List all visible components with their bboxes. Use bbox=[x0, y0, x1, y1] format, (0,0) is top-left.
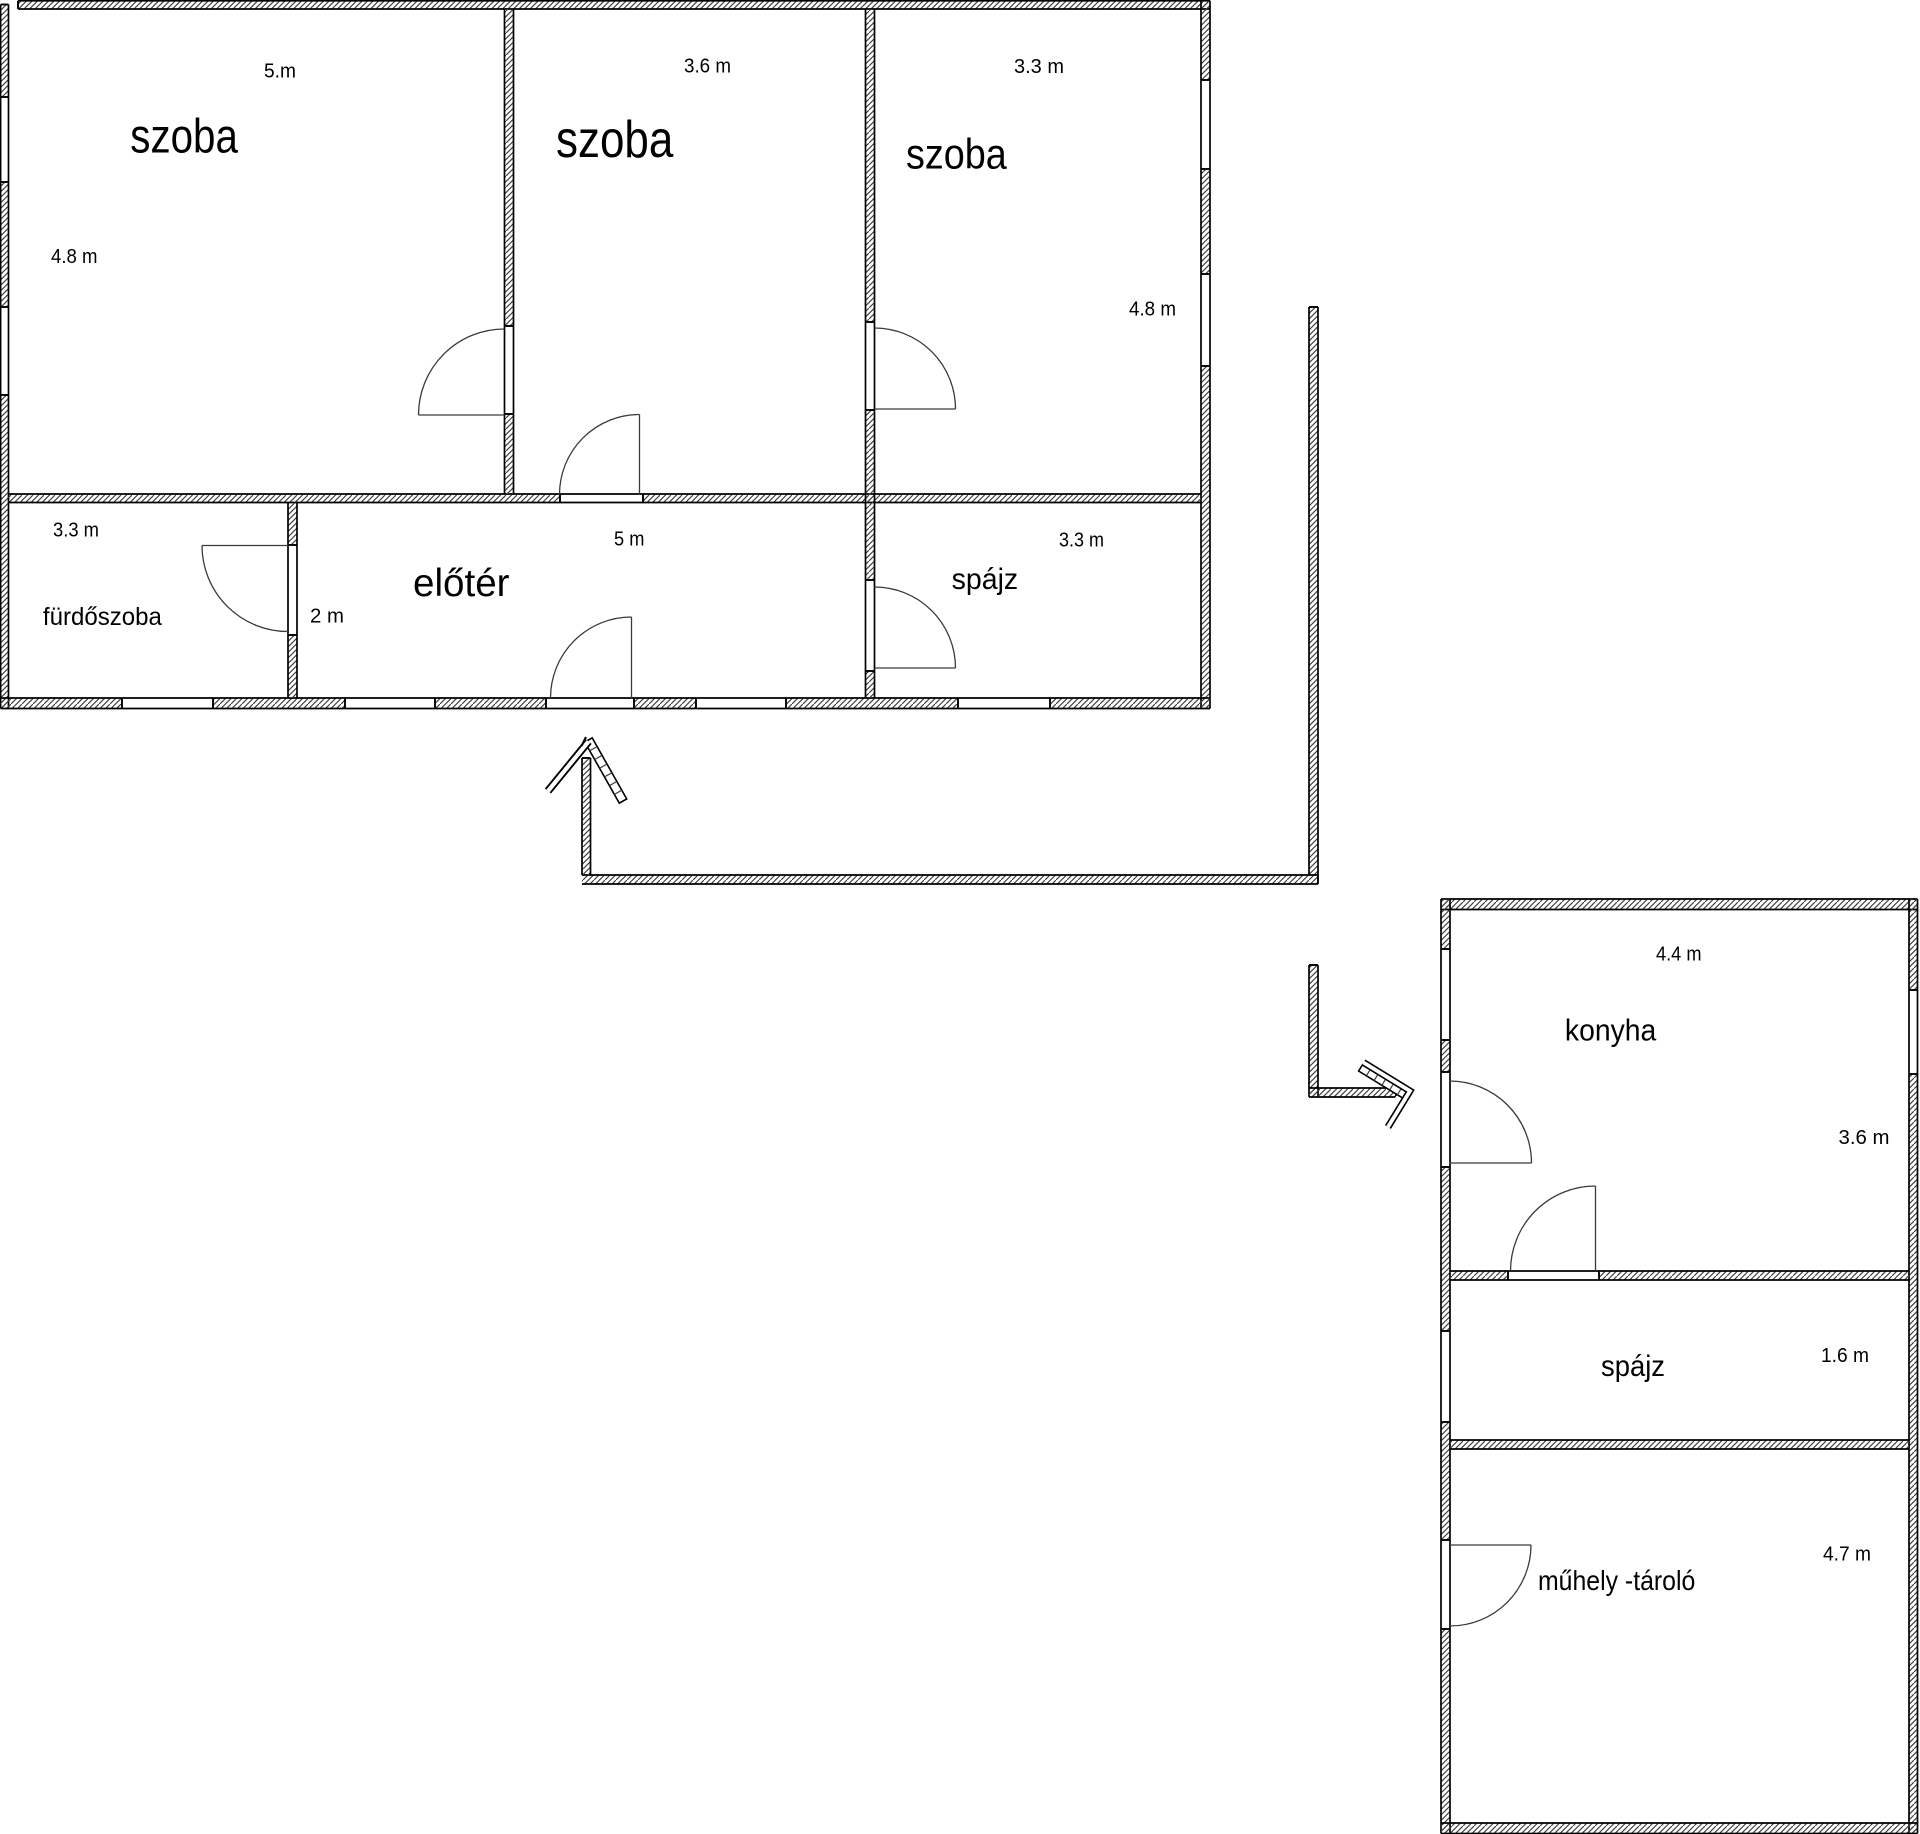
svg-text:2 m: 2 m bbox=[310, 606, 344, 628]
svg-text:szoba: szoba bbox=[556, 110, 674, 168]
svg-text:spájz: spájz bbox=[952, 563, 1019, 596]
svg-text:spájz: spájz bbox=[1601, 1350, 1665, 1383]
svg-text:szoba: szoba bbox=[130, 110, 238, 163]
svg-text:4.4 m: 4.4 m bbox=[1656, 944, 1702, 966]
svg-text:3.6 m: 3.6 m bbox=[1839, 1127, 1890, 1149]
svg-text:3.3 m: 3.3 m bbox=[1014, 56, 1064, 78]
svg-text:3.6 m: 3.6 m bbox=[684, 56, 731, 78]
svg-text:3.3 m: 3.3 m bbox=[53, 520, 99, 542]
svg-text:fürdőszoba: fürdőszoba bbox=[43, 603, 162, 631]
svg-text:1.6 m: 1.6 m bbox=[1821, 1345, 1869, 1367]
svg-text:4.8 m: 4.8 m bbox=[51, 246, 98, 268]
svg-text:5 m: 5 m bbox=[614, 529, 644, 551]
svg-text:4.8 m: 4.8 m bbox=[1129, 299, 1176, 321]
svg-text:szoba: szoba bbox=[906, 131, 1007, 179]
svg-text:5.m: 5.m bbox=[264, 61, 296, 83]
svg-text:konyha: konyha bbox=[1565, 1013, 1657, 1048]
svg-text:4.7 m: 4.7 m bbox=[1823, 1544, 1871, 1566]
svg-text:előtér: előtér bbox=[413, 562, 510, 605]
svg-text:3.3 m: 3.3 m bbox=[1059, 530, 1104, 552]
svg-text:műhely -tároló: műhely -tároló bbox=[1538, 1565, 1695, 1596]
